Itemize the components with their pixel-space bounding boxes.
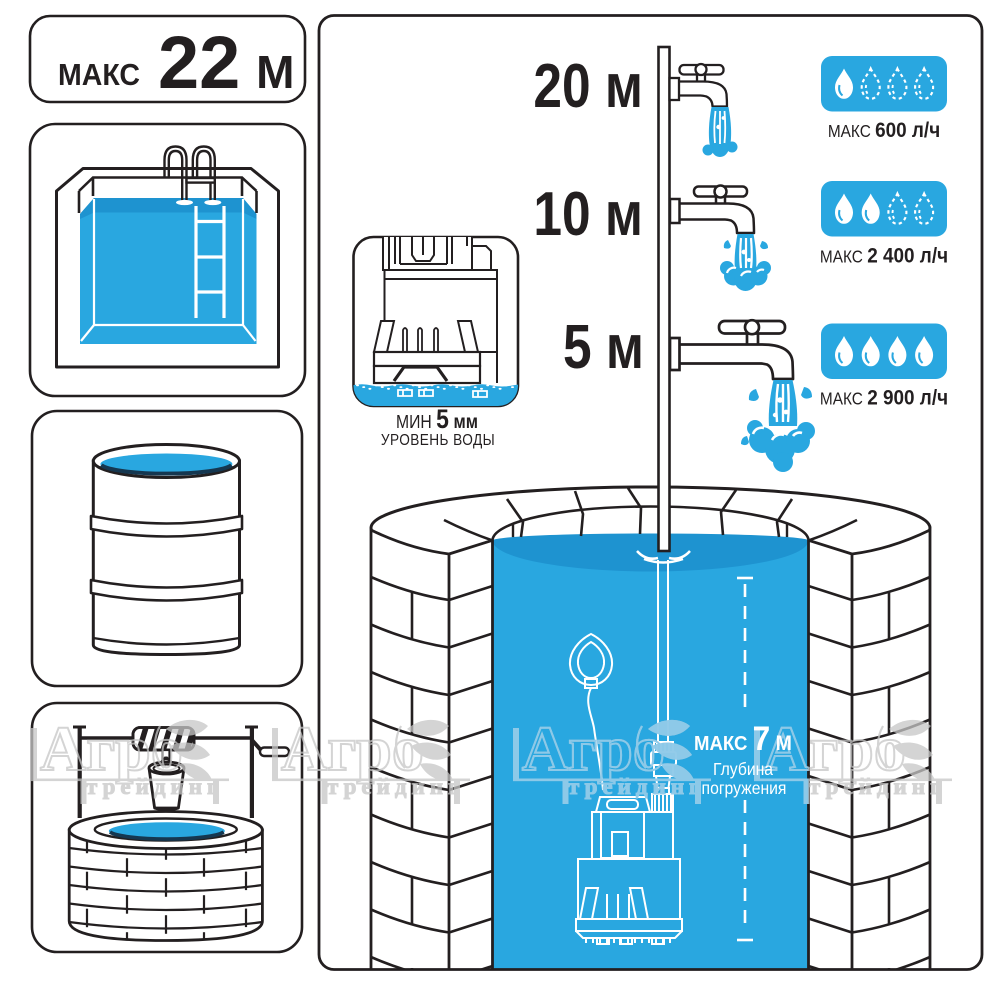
svg-text:5 м: 5 м bbox=[563, 313, 644, 383]
svg-text:МАКС 2 400 л/ч: МАКС 2 400 л/ч bbox=[820, 244, 948, 267]
svg-text:МАКС: МАКС bbox=[58, 58, 140, 92]
svg-text:20 м: 20 м bbox=[533, 52, 643, 122]
svg-text:МАКС 2 900 л/ч: МАКС 2 900 л/ч bbox=[820, 386, 948, 409]
svg-text:10 м: 10 м bbox=[533, 180, 643, 250]
svg-text:Глубина: Глубина bbox=[713, 759, 774, 779]
svg-text:МАКС 600 л/ч: МАКС 600 л/ч bbox=[828, 119, 940, 142]
svg-text:погружения: погружения bbox=[702, 778, 787, 798]
svg-text:УРОВЕНЬ ВОДЫ: УРОВЕНЬ ВОДЫ bbox=[381, 432, 495, 449]
